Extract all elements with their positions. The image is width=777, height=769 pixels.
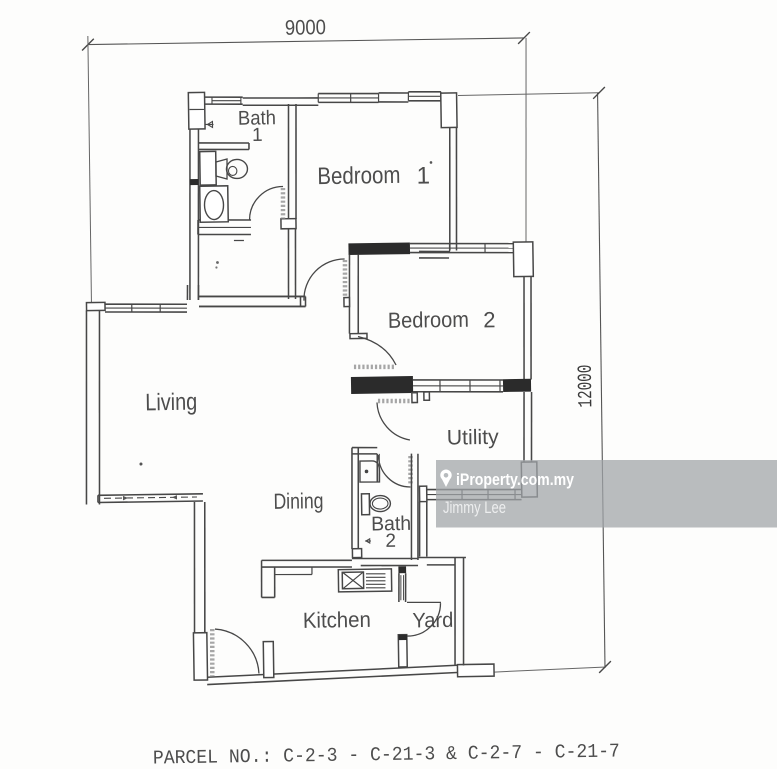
svg-text:Kitchen: Kitchen (303, 607, 371, 633)
svg-text:2: 2 (483, 307, 496, 332)
svg-text:Bedroom: Bedroom (317, 162, 400, 190)
svg-text:Bedroom: Bedroom (388, 307, 469, 333)
svg-text:Yard: Yard (412, 609, 453, 633)
svg-text:9000: 9000 (285, 16, 326, 40)
svg-text:Dining: Dining (273, 488, 323, 514)
svg-text:Jimmy Lee: Jimmy Lee (443, 498, 506, 517)
svg-text:iProperty.com.my: iProperty.com.my (456, 470, 574, 489)
svg-text:1: 1 (417, 162, 431, 189)
svg-text:Living: Living (145, 389, 197, 417)
svg-text:2: 2 (385, 531, 396, 552)
svg-text:12000: 12000 (575, 364, 599, 407)
svg-text:Utility: Utility (447, 426, 500, 450)
svg-text:1: 1 (252, 125, 263, 146)
